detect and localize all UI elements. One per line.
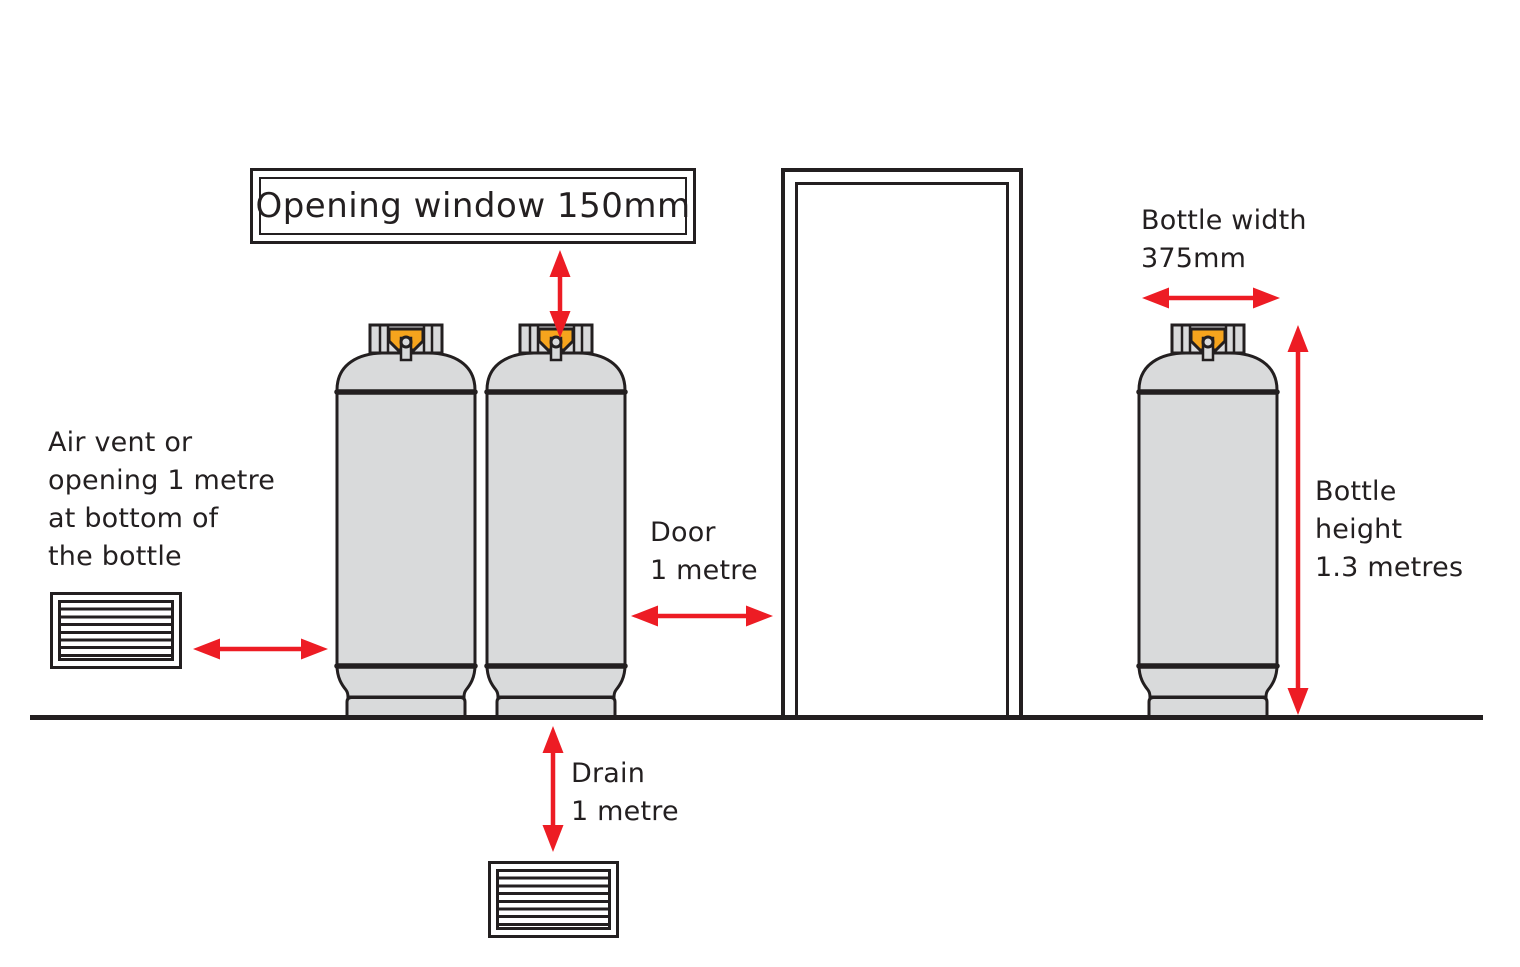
gas-bottle-middle (484, 322, 628, 719)
drain-slats (496, 869, 611, 930)
gas-bottle-left (334, 322, 478, 719)
drain-clearance-arrow (538, 725, 568, 853)
door-clearance-arrow (630, 601, 774, 631)
door-label: Door 1 metre (650, 514, 758, 590)
bottle-height-label: Bottle height 1.3 metres (1315, 473, 1463, 587)
gas-bottle-right (1136, 322, 1280, 719)
bottle-width-label: Bottle width 375mm (1141, 202, 1307, 278)
opening-window-box: Opening window 150mm (250, 168, 696, 244)
bottle-width-arrow (1141, 283, 1281, 313)
bottle-height-arrow (1283, 324, 1313, 716)
door-frame-inner (795, 182, 1009, 718)
drain-grille (488, 861, 619, 938)
air-vent-slats (58, 600, 174, 661)
diagram-canvas: Opening window 150mm (0, 0, 1520, 967)
ground-line (30, 715, 1483, 720)
air-vent-clearance-arrow (192, 634, 329, 664)
air-vent-label: Air vent or opening 1 metre at bottom of… (48, 424, 275, 576)
opening-window-inner-frame: Opening window 150mm (259, 177, 687, 235)
window-clearance-arrow (545, 249, 575, 339)
drain-label: Drain 1 metre (571, 755, 679, 831)
opening-window-label: Opening window 150mm (255, 186, 690, 226)
air-vent-grille (50, 592, 182, 669)
